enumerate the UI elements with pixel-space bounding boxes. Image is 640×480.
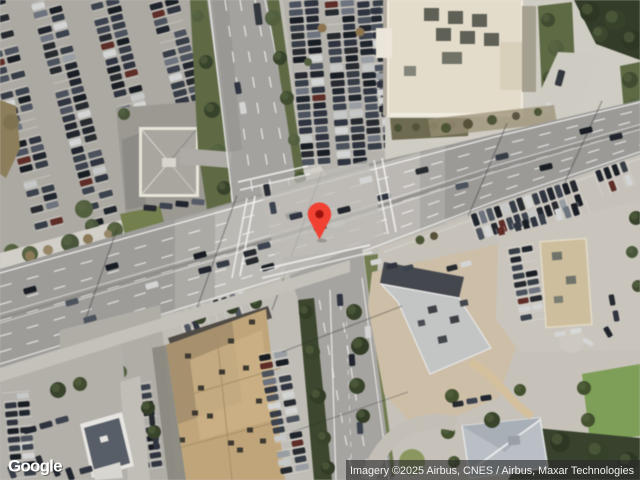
svg-text:Google: Google (8, 457, 62, 476)
svg-text:Imagery ©2025 Airbus, CNES / A: Imagery ©2025 Airbus, CNES / Airbus, Max… (350, 465, 634, 477)
